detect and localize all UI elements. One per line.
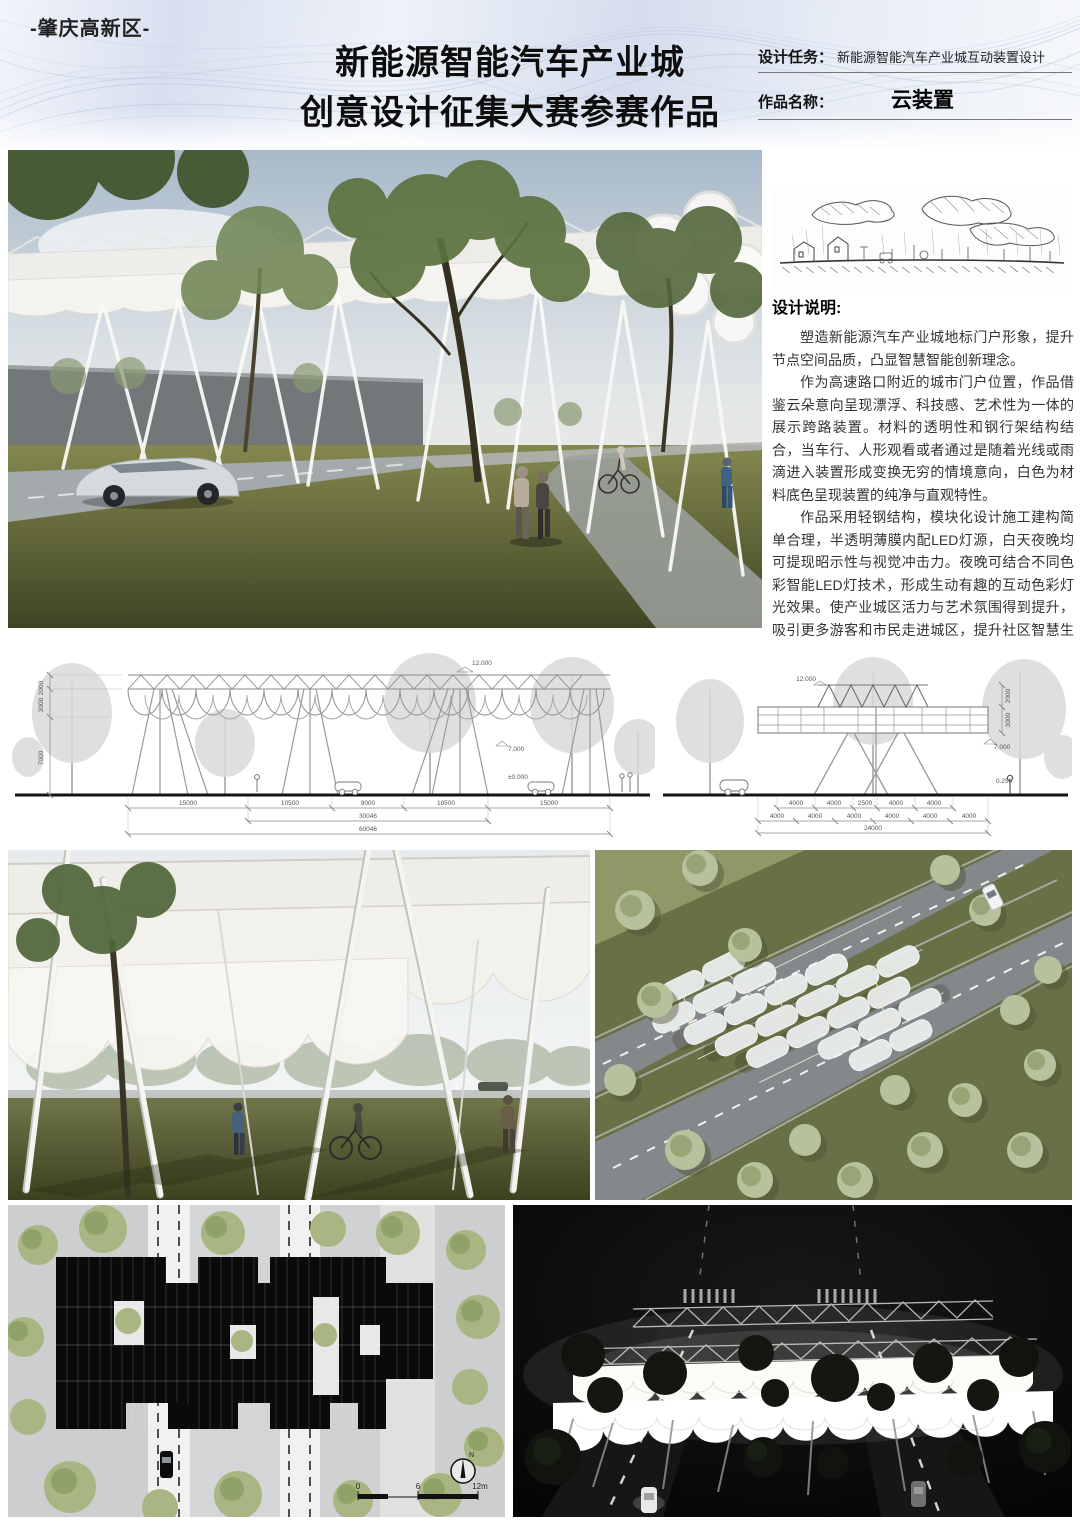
elev-right-b6: 4000 [962, 813, 977, 820]
concept-sketch-image [772, 185, 1072, 290]
work-name-value: 云装置 [891, 84, 954, 114]
scale-label-mid: 6 [416, 1482, 421, 1491]
elev-right-total: 24000 [864, 825, 882, 832]
title-line-1: 新能源智能汽车产业城 [245, 38, 775, 88]
elev-left-v2: 3000 [38, 697, 45, 712]
main-render-image [8, 150, 762, 628]
elev-right-a4: 4000 [889, 800, 904, 807]
elev-right-v2: 3000 [1005, 712, 1012, 727]
elev-left-v1: 2000 [38, 680, 45, 695]
elev-left-d2: 10500 [281, 800, 299, 807]
elev-right-ground-dim: 0.250 [996, 778, 1013, 785]
elev-left-v3: 7000 [38, 750, 45, 765]
plan-car [160, 1451, 173, 1478]
meta-underline-2 [758, 119, 1072, 120]
elev-right-b4: 4000 [885, 813, 900, 820]
task-label: 设计任务： [758, 46, 833, 67]
scale-label-0: 0 [356, 1482, 361, 1491]
elev-right-top-dim: 12.000 [796, 676, 816, 683]
under-canopy-render-image [8, 850, 590, 1200]
elev-right-a3: 2500 [858, 800, 873, 807]
north-label: N [469, 1452, 474, 1459]
description-paragraph-3: 作品采用轻钢结构，模块化设计施工建构简单合理，半透明薄膜内配LED灯源，白天夜晚… [772, 506, 1074, 664]
header-band: -肇庆高新区- 新能源智能汽车产业城 创意设计征集大赛参赛作品 设计任务： 新能… [0, 0, 1080, 150]
night-render-image [513, 1205, 1072, 1517]
elev-left-total: 60046 [359, 826, 377, 833]
site-plan-image: 0 6 12m N [8, 1205, 505, 1517]
elev-right-b2: 4000 [808, 813, 823, 820]
elev-right-b1: 4000 [770, 813, 785, 820]
region-badge: -肇庆高新区- [30, 12, 150, 41]
scale-label-end: 12m [472, 1482, 488, 1491]
poster-board: -肇庆高新区- 新能源智能汽车产业城 创意设计征集大赛参赛作品 设计任务： 新能… [0, 0, 1080, 1525]
elev-left-mid-dim: 7.000 [508, 746, 525, 753]
elev-left-d1: 15000 [179, 800, 197, 807]
elev-left-top-dim: 12.000 [472, 660, 492, 667]
elev-right-b5: 4000 [923, 813, 938, 820]
night-car-right [911, 1481, 926, 1507]
elev-left-d3: 9000 [361, 800, 376, 807]
elev-left-d4: 10500 [437, 800, 455, 807]
aerial-render-image [595, 850, 1072, 1200]
meta-underline-1 [758, 72, 1072, 73]
elev-left-ground-dim: ±0.000 [508, 774, 528, 781]
elev-right-a1: 4000 [789, 800, 804, 807]
elev-right-v1: 2000 [1005, 688, 1012, 703]
elev-right-a2: 4000 [827, 800, 842, 807]
description-title: 设计说明: [772, 294, 1074, 318]
poster-title: 新能源智能汽车产业城 创意设计征集大赛参赛作品 [245, 38, 775, 138]
short-elevation-drawing: 12.000 7.000 0.250 2000 3000 4000 4000 [658, 645, 1072, 845]
elev-right-b3: 4000 [847, 813, 862, 820]
title-line-2: 创意设计征集大赛参赛作品 [245, 88, 775, 138]
elev-right-mid-dim: 7.000 [994, 744, 1011, 751]
elev-left-subtotal: 30046 [359, 813, 377, 820]
design-description: 设计说明: 塑造新能源汽车产业城地标门户形象，提升节点空间品质，凸显智慧智能创新… [772, 294, 1074, 664]
long-elevation-drawing: 12.000 7.000 ±0.000 2000 3000 7000 [10, 645, 655, 845]
task-value: 新能源智能汽车产业城互动装置设计 [837, 47, 1045, 66]
header-meta: 设计任务： 新能源智能汽车产业城互动装置设计 作品名称： 云装置 [758, 46, 1072, 131]
description-paragraph-2: 作为高速路口附近的城市门户位置，作品借鉴云朵意向呈现漂浮、科技感、艺术性为一体的… [772, 371, 1074, 506]
work-name-label: 作品名称： [758, 91, 833, 112]
description-paragraph-1: 塑造新能源汽车产业城地标门户形象，提升节点空间品质，凸显智慧智能创新理念。 [772, 326, 1074, 371]
elev-right-a5: 4000 [927, 800, 942, 807]
elev-left-d5: 15000 [540, 800, 558, 807]
